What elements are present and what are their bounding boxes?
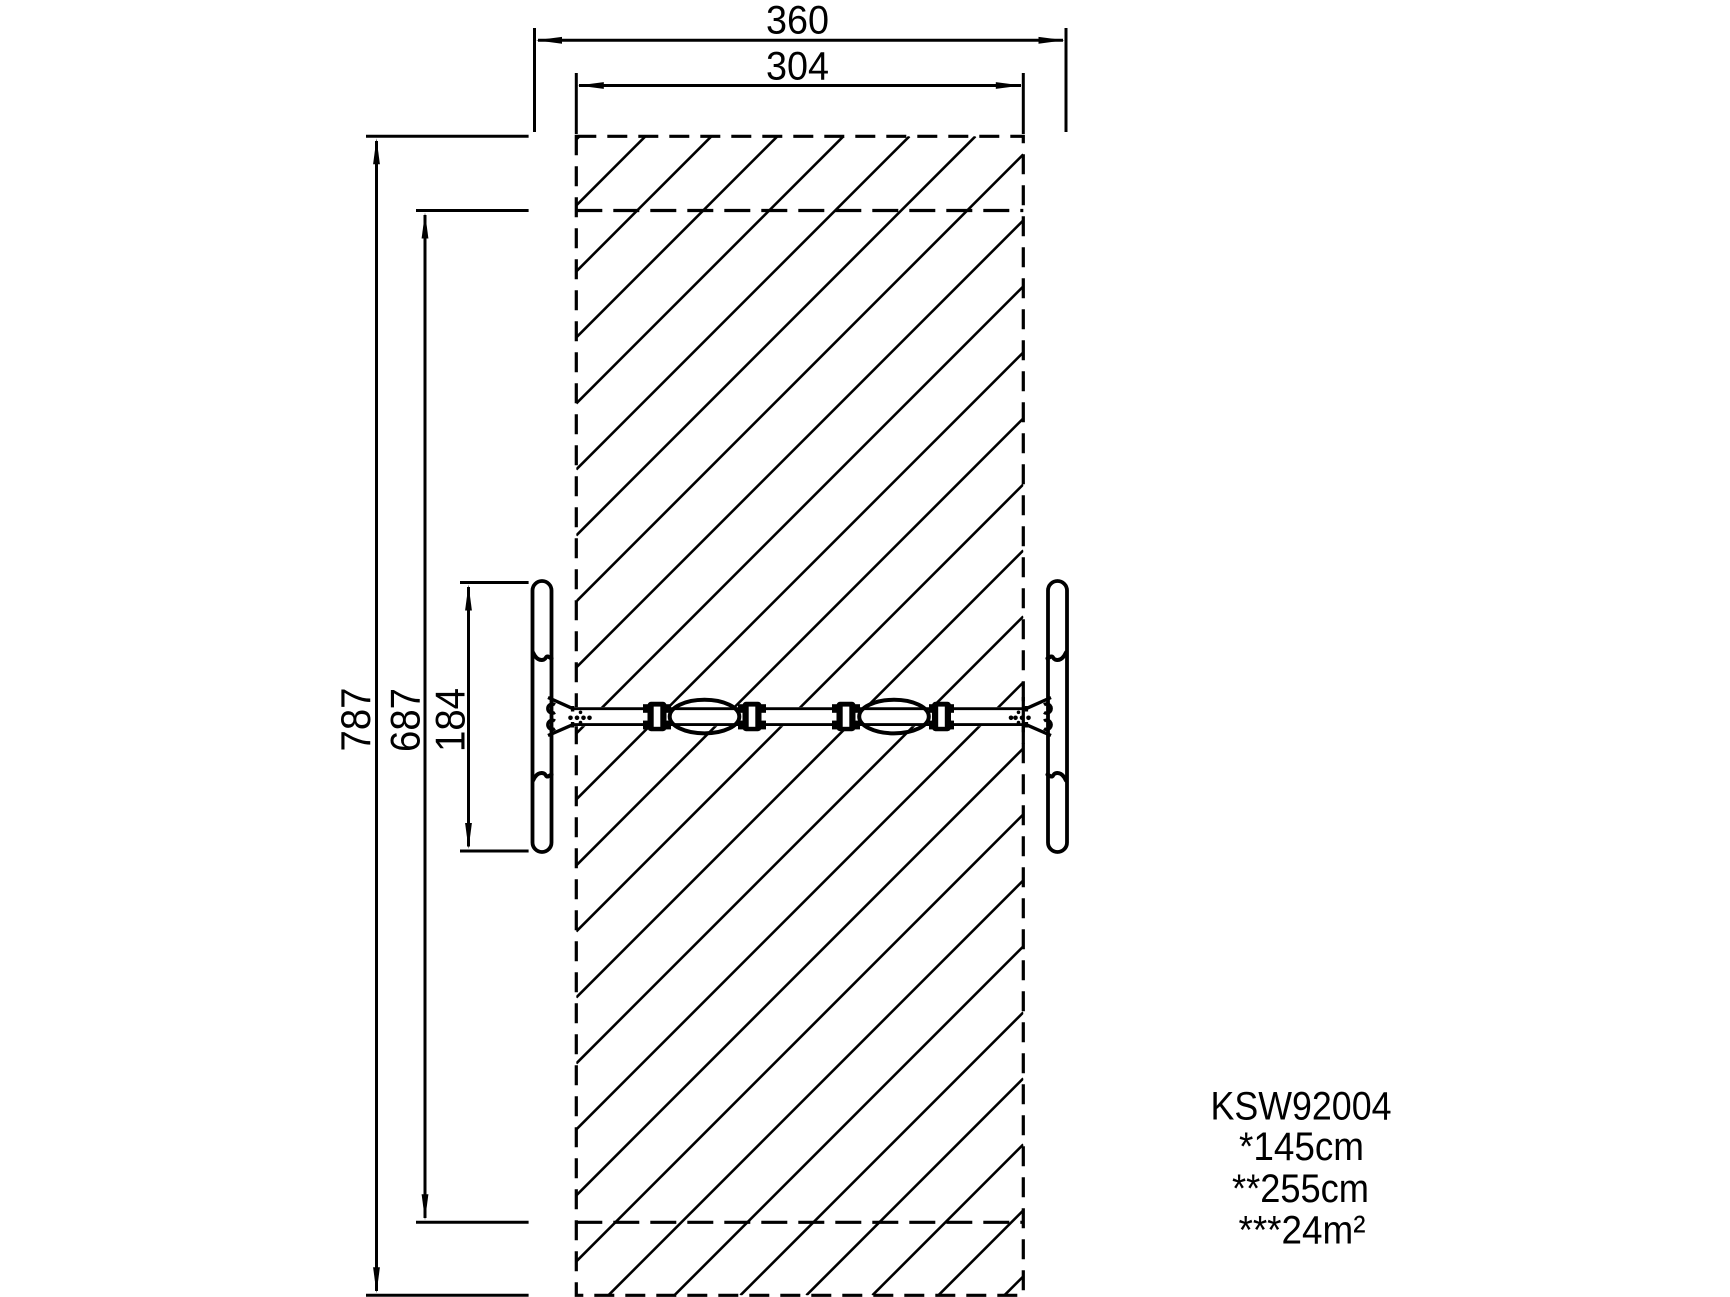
- svg-text:360: 360: [766, 0, 829, 43]
- svg-text:**255cm: **255cm: [1232, 1167, 1369, 1211]
- svg-text:***24m²: ***24m²: [1239, 1209, 1366, 1253]
- svg-text:184: 184: [427, 688, 474, 752]
- svg-text:KSW92004: KSW92004: [1211, 1085, 1392, 1129]
- svg-text:687: 687: [382, 688, 429, 752]
- svg-text:*145cm: *145cm: [1239, 1125, 1364, 1169]
- svg-text:787: 787: [332, 688, 379, 752]
- svg-text:304: 304: [766, 45, 829, 89]
